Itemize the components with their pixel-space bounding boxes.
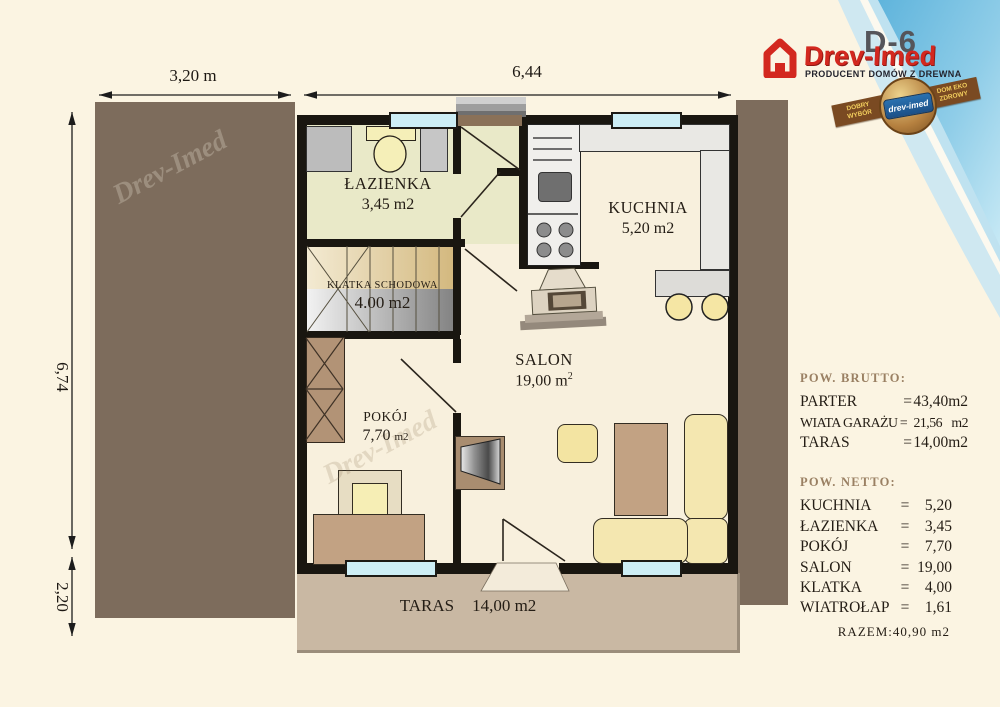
brutto-row-parter: PARTER=43,40m2 bbox=[800, 392, 968, 412]
pokoj-name: POKÓJ bbox=[338, 409, 433, 426]
kuchnia-area: 5,20 m2 bbox=[588, 219, 708, 239]
pokoj-label: POKÓJ 7,70 m2 bbox=[338, 409, 433, 446]
brand-house-icon bbox=[760, 36, 800, 78]
taras-name: TARAS bbox=[400, 595, 454, 616]
netto-total: RAZEM:40,90 m2 bbox=[800, 622, 952, 642]
bar-counter bbox=[655, 270, 730, 297]
wall-room-divider-north bbox=[453, 339, 461, 363]
washing-machine bbox=[420, 126, 448, 172]
taras-area: 14,00 m2 bbox=[472, 595, 536, 616]
sofa-bottom bbox=[593, 518, 688, 564]
brutto-title: POW. BRUTTO: bbox=[800, 368, 968, 388]
tv-cabinet bbox=[455, 436, 505, 490]
salon-name: SALON bbox=[494, 350, 594, 371]
pokoj-area: 7,70 m2 bbox=[338, 426, 433, 446]
page: D-6 Drev-Imed PRODUCENT DOMÓW Z DREWNA D… bbox=[0, 0, 1000, 707]
summary-netto: POW. NETTO: KUCHNIA=5,20 ŁAZIENKA=3,45 P… bbox=[800, 472, 952, 642]
quality-badge: DOBRY WYBÓR DOM EKO ZDROWY drev-imed bbox=[833, 76, 981, 140]
wall-bathroom-east bbox=[453, 124, 461, 174]
netto-row-salon: SALON=19,00 bbox=[800, 558, 952, 578]
dimension-label-carport-width: 3,20 m bbox=[148, 66, 238, 86]
pouf bbox=[557, 424, 598, 463]
oven bbox=[538, 172, 572, 202]
kitchen-window bbox=[611, 112, 682, 129]
kuchnia-label: KUCHNIA 5,20 m2 bbox=[588, 198, 708, 239]
netto-row-pokoj: POKÓJ=7,70 bbox=[800, 537, 952, 557]
netto-row-wiatrolap: WIATROŁAP=1,61 bbox=[800, 598, 952, 618]
lazienka-area: 3,45 m2 bbox=[328, 195, 448, 215]
klatka-label: KLATKA SCHODOWA 4.00 m2 bbox=[315, 279, 450, 313]
wall-kitchen-west bbox=[519, 124, 527, 269]
bed bbox=[313, 514, 425, 565]
bathroom-window bbox=[389, 112, 458, 129]
lazienka-name: ŁAZIENKA bbox=[328, 174, 448, 195]
shower bbox=[306, 126, 352, 172]
dimension-label-house-depth: 6,74 bbox=[52, 347, 72, 407]
dimension-label-house-width: 6,44 bbox=[487, 62, 567, 82]
right-roof-overhang bbox=[736, 100, 788, 605]
klatka-name: KLATKA SCHODOWA bbox=[315, 279, 450, 292]
brutto-row-taras: TARAS=14,00m2 bbox=[800, 433, 968, 453]
badge-seal-label: drev-imed bbox=[882, 92, 933, 120]
terrace-door-opening bbox=[497, 563, 559, 574]
taras-label: TARAS 14,00 m2 bbox=[348, 595, 588, 616]
wall-bathroom-south bbox=[300, 239, 465, 247]
badge-left-ribbon: DOBRY WYBÓR bbox=[831, 95, 886, 127]
armchair-cushion bbox=[352, 483, 388, 517]
kuchnia-name: KUCHNIA bbox=[588, 198, 708, 219]
salon-label: SALON 19,00 m2 bbox=[494, 350, 594, 391]
wall-staircase-east bbox=[453, 218, 461, 335]
summary-brutto: POW. BRUTTO: PARTER=43,40m2 WIATA GARAŻU… bbox=[800, 368, 968, 454]
entrance-threshold bbox=[458, 115, 522, 126]
salon-area: 19,00 m2 bbox=[494, 371, 594, 391]
netto-title: POW. NETTO: bbox=[800, 472, 952, 492]
coffee-table bbox=[614, 423, 668, 516]
sofa-corner bbox=[684, 518, 728, 564]
pokoj-window bbox=[345, 560, 437, 577]
lazienka-label: ŁAZIENKA 3,45 m2 bbox=[328, 174, 448, 215]
sofa-right bbox=[684, 414, 728, 520]
brand-name: Drev-Imed bbox=[803, 41, 937, 72]
badge-seal: drev-imed bbox=[879, 77, 937, 135]
netto-row-kuchnia: KUCHNIA=5,20 bbox=[800, 496, 952, 516]
brutto-row-wiata: WIATA GARAŻU=21,56m2 bbox=[800, 413, 968, 433]
netto-row-lazienka: ŁAZIENKA=3,45 bbox=[800, 517, 952, 537]
klatka-area: 4.00 m2 bbox=[315, 292, 450, 313]
fireplace bbox=[510, 258, 620, 338]
chimney-cap bbox=[456, 97, 526, 104]
netto-row-klatka: KLATKA=4,00 bbox=[800, 578, 952, 598]
chimney-mid bbox=[456, 104, 526, 111]
salon-window bbox=[621, 560, 682, 577]
dimension-label-terrace-depth: 2,20 bbox=[52, 567, 72, 627]
